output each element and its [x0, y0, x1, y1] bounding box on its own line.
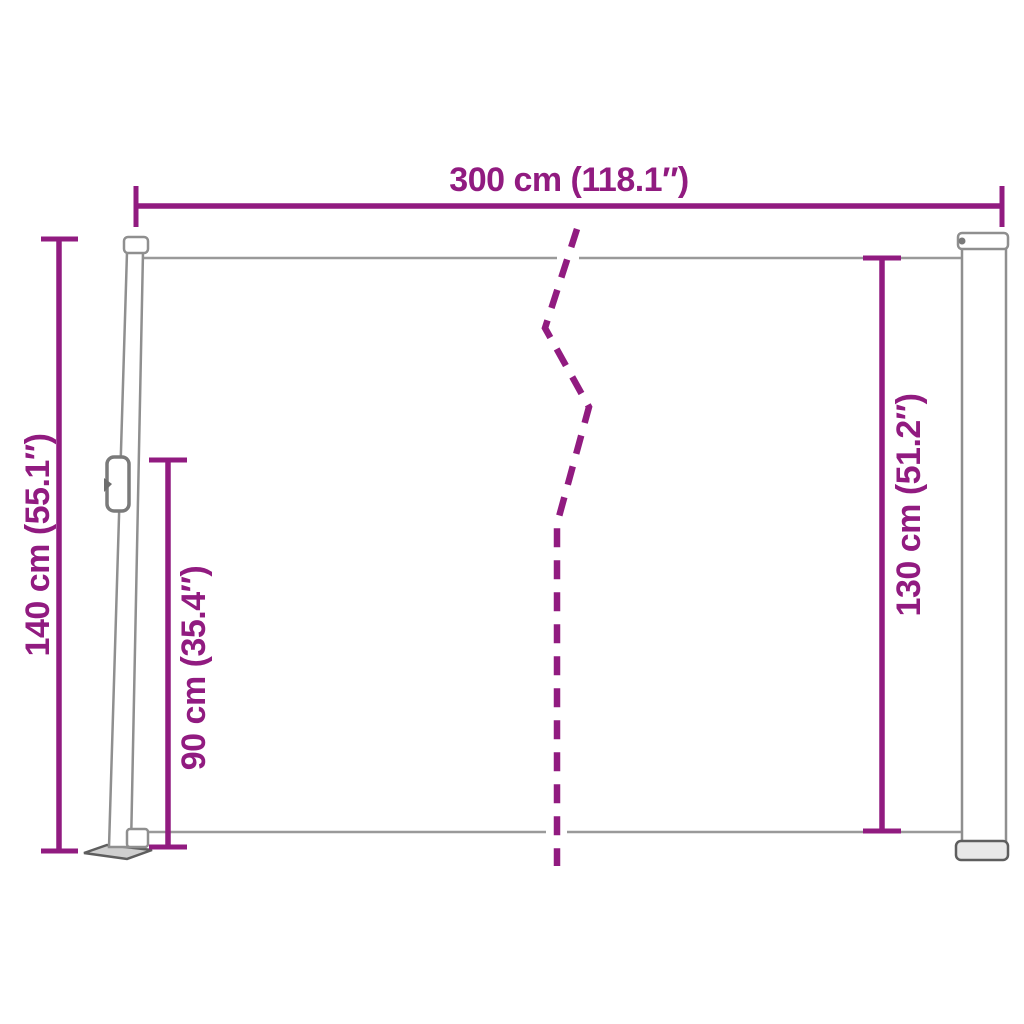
cassette-top-bolt	[959, 238, 966, 245]
dimension-width: 300 cm (118.1″)	[136, 161, 1002, 227]
dimension-height-right: 130 cm (51.2″)	[863, 258, 928, 831]
fabric-bottom-bracket	[127, 829, 148, 847]
cassette-body	[962, 246, 1006, 844]
left-post	[84, 237, 152, 859]
cassette-post	[956, 233, 1008, 860]
dimension-height-front: 90 cm (35.4″)	[149, 460, 213, 847]
dimension-height-total-label: 140 cm (55.1″)	[19, 434, 57, 657]
diagram-canvas: 300 cm (118.1″) 140 cm (55.1″) 90 cm (35…	[0, 0, 1024, 1024]
dimension-height-total: 140 cm (55.1″)	[19, 239, 78, 851]
cassette-bottom-cap	[956, 841, 1008, 860]
dimension-height-front-label: 90 cm (35.4″)	[175, 566, 213, 770]
awning-dimension-diagram: 300 cm (118.1″) 140 cm (55.1″) 90 cm (35…	[0, 0, 1024, 1024]
post-body	[109, 252, 143, 847]
fabric-cut-dashed-line	[545, 229, 589, 866]
post-top-cap	[124, 237, 148, 253]
dimension-height-right-label: 130 cm (51.2″)	[890, 394, 928, 617]
dimension-width-label: 300 cm (118.1″)	[449, 161, 688, 199]
